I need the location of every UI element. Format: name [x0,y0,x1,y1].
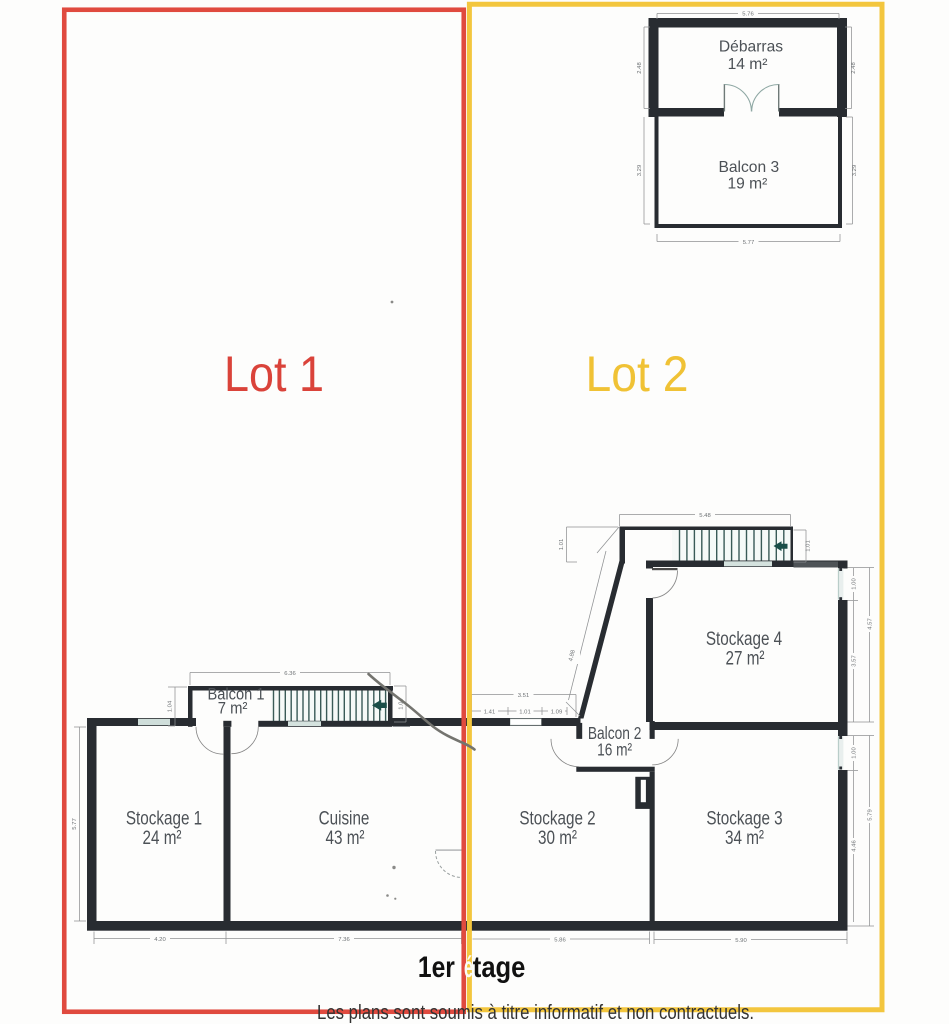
svg-text:Débarras: Débarras [719,39,783,56]
svg-text:4.20: 4.20 [154,937,166,943]
svg-text:Balcon 3: Balcon 3 [718,159,779,176]
svg-text:2.48: 2.48 [637,62,643,74]
svg-text:1.00: 1.00 [852,578,858,590]
svg-text:5.77: 5.77 [72,818,78,829]
svg-text:7 m²: 7 m² [218,700,248,718]
svg-text:Lot 2: Lot 2 [586,346,689,402]
svg-text:1.09: 1.09 [551,709,562,715]
svg-text:5.86: 5.86 [554,938,566,944]
svg-text:27 m²: 27 m² [726,648,765,670]
svg-text:2.48: 2.48 [851,62,857,74]
svg-text:16 m²: 16 m² [597,740,632,760]
svg-text:1.04: 1.04 [168,700,174,712]
svg-text:3.57: 3.57 [852,655,858,666]
svg-text:3.29: 3.29 [637,165,643,176]
svg-text:7.36: 7.36 [338,937,350,943]
svg-text:Lot 1: Lot 1 [224,346,324,402]
svg-text:4.57: 4.57 [868,618,874,629]
svg-text:3.29: 3.29 [852,165,858,176]
svg-text:6.36: 6.36 [284,671,296,677]
svg-text:Les plans sont soumis à titre: Les plans sont soumis à titre informatif… [317,1002,754,1024]
svg-text:30 m²: 30 m² [538,827,577,849]
svg-text:1.01: 1.01 [806,540,812,551]
svg-text:3.51: 3.51 [518,693,529,699]
svg-text:1er: 1er [418,951,455,984]
svg-text:34 m²: 34 m² [725,827,764,849]
svg-text:1.41: 1.41 [484,709,495,715]
svg-text:5.76: 5.76 [742,12,754,18]
svg-text:1.00: 1.00 [852,747,858,759]
svg-text:1.01: 1.01 [519,709,530,715]
svg-text:5.77: 5.77 [743,240,754,246]
svg-text:5.90: 5.90 [735,938,747,944]
svg-text:14 m²: 14 m² [728,56,768,73]
svg-text:1.01: 1.01 [559,539,565,550]
svg-text:43 m²: 43 m² [326,827,365,849]
svg-text:5.79: 5.79 [868,809,874,820]
svg-text:4.46: 4.46 [852,840,858,852]
svg-text:é: é [464,951,473,984]
svg-text:tage: tage [473,951,526,984]
svg-text:5.48: 5.48 [699,513,711,519]
svg-text:24 m²: 24 m² [143,827,182,849]
svg-text:19 m²: 19 m² [727,176,767,193]
